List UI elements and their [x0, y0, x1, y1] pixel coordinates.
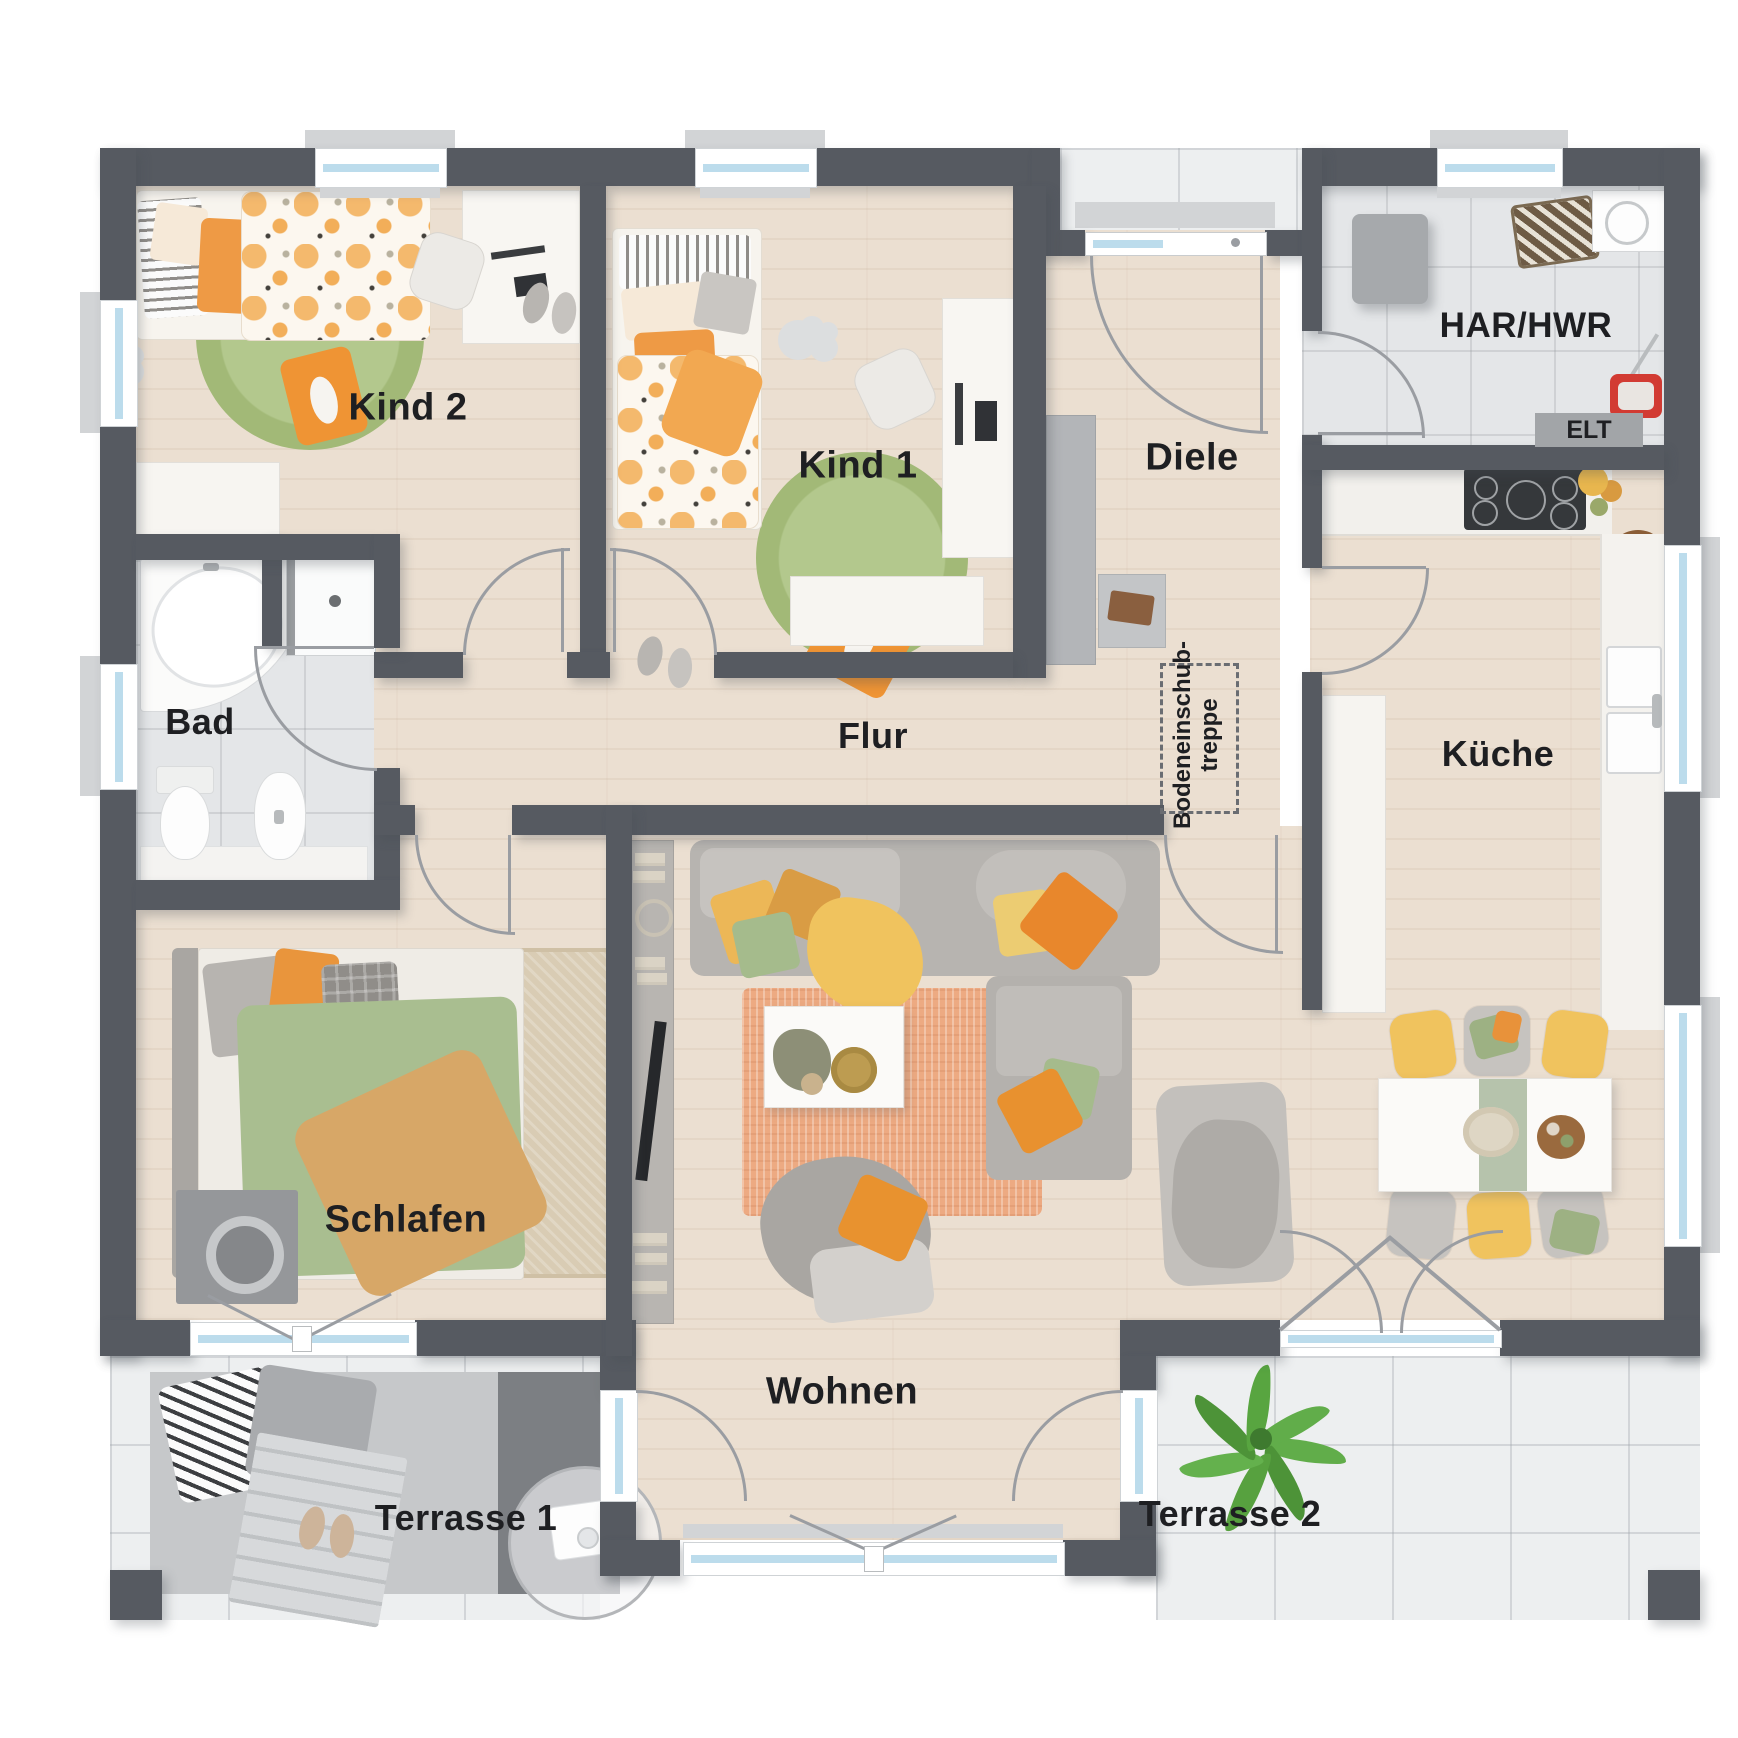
bed-kind2 [136, 190, 430, 340]
dining-chair-gray [1464, 1006, 1530, 1076]
burner-icon [1506, 480, 1546, 520]
bidet-faucet-icon [274, 810, 284, 824]
dining-chair-gray [1535, 1182, 1610, 1261]
door-sidelight-glass [1093, 240, 1163, 248]
window-kind2-north [315, 148, 447, 188]
bathtub-faucet-icon [203, 563, 219, 571]
room-label-terrasse1: Terrasse 1 [375, 1497, 557, 1539]
laundry-basket [1510, 195, 1600, 270]
cleaning-bucket [1610, 374, 1662, 418]
kitchen-tall-cabinet [1322, 695, 1386, 1013]
bucket-rag [1618, 382, 1654, 410]
window-kind2-west [100, 300, 138, 427]
toy-fox [306, 374, 343, 427]
toilet [152, 766, 216, 862]
room-label-kueche: Küche [1442, 733, 1555, 775]
window-essen-east [1664, 1005, 1702, 1247]
window-sill [80, 292, 100, 433]
utility-unit [1352, 214, 1428, 304]
entrance-door [1085, 232, 1267, 256]
room-label-kind2: Kind 2 [348, 387, 467, 430]
wall-bad-north [136, 534, 374, 560]
draped-cloth-orange [1491, 1010, 1523, 1045]
shower [286, 558, 376, 656]
table-bowl [1537, 1115, 1585, 1159]
wall-south-schlafen-right [415, 1320, 636, 1356]
plant-pot-icon [801, 1073, 823, 1095]
draped-cloth-green [1548, 1208, 1601, 1257]
bed-kind1 [612, 228, 762, 530]
door-leaf [1318, 432, 1422, 435]
kitchen-counter-east [1600, 534, 1666, 1030]
label-attic-stair: Bodeneinschub- treppe [1169, 641, 1223, 829]
window-kueche-east [1664, 545, 1702, 792]
terrace-door-wohnen-east [1120, 1390, 1158, 1502]
gold-tray [831, 1047, 877, 1093]
wall-north-left [100, 148, 1032, 186]
wall-south-essen-right [1500, 1320, 1700, 1356]
window-sill [80, 656, 100, 796]
slider-handle [864, 1546, 884, 1572]
dining-table [1378, 1078, 1612, 1192]
wall-har-south [1302, 445, 1664, 470]
books [631, 1281, 667, 1291]
terrace-door-wohnen-west [600, 1390, 638, 1502]
books [1107, 590, 1155, 626]
wall-bad-south [136, 880, 400, 910]
faucet-icon [1652, 694, 1662, 728]
nightstand [176, 1190, 298, 1304]
wall-diele-east-a [1302, 148, 1322, 331]
monitor-icon [955, 383, 963, 445]
threshold-strip [683, 1524, 1063, 1538]
cloud-side-table-kind1 [778, 320, 818, 360]
books [633, 1233, 667, 1243]
kitchen-flowers [1578, 466, 1608, 496]
desk-kind1 [942, 298, 1015, 558]
dining-chair-yellow [1540, 1008, 1611, 1082]
wall-south-schlafen-left [100, 1320, 190, 1356]
window-har-north [1437, 148, 1563, 188]
wall-schlafen-north-stub [374, 805, 415, 835]
entry-step [1075, 202, 1275, 228]
window-sill [685, 130, 825, 148]
window-sill [1700, 997, 1720, 1253]
armchair [1155, 1081, 1295, 1288]
burner-icon [1550, 502, 1578, 530]
books [637, 973, 667, 982]
room-label-diele: Diele [1145, 437, 1238, 480]
washer-door-icon [1605, 201, 1649, 245]
window-sill [305, 130, 455, 148]
table-flowers [1463, 1107, 1519, 1157]
monitor-icon [491, 245, 545, 259]
sideboard-kind1 [790, 576, 984, 646]
terrace1-corner-post [110, 1570, 162, 1620]
shower-glass [287, 559, 295, 655]
wall-flur-north-b [567, 652, 610, 678]
cooktop [1464, 468, 1586, 530]
door-leaf [561, 548, 564, 652]
armchair-drape [1169, 1117, 1283, 1270]
burner-icon [1472, 500, 1498, 526]
elt-cabinet: ELT [1535, 413, 1643, 447]
window-sill [1430, 130, 1568, 148]
floor-plan: ELT [0, 0, 1738, 1738]
wall-schlafen-east [606, 805, 632, 1356]
shower-drain-icon [329, 595, 341, 607]
room-label-wohnen: Wohnen [766, 1371, 918, 1414]
wall-flur-north-a [374, 652, 463, 678]
cup-icon [577, 1527, 599, 1549]
washing-machine [1592, 190, 1666, 252]
palm-trunk-icon [1250, 1428, 1272, 1450]
bidet [248, 772, 310, 862]
books [635, 1253, 667, 1262]
label-attic-stair-line1: Bodeneinschub- [1169, 641, 1196, 829]
wall-kueche-west [1302, 672, 1322, 1010]
burner-icon [1552, 476, 1578, 502]
door-leaf [1260, 256, 1263, 431]
room-label-kind1: Kind 1 [798, 445, 917, 488]
room-label-flur: Flur [838, 715, 908, 757]
books [635, 853, 665, 863]
books [633, 871, 665, 880]
media-panel [626, 840, 674, 1324]
window-bad-west [100, 664, 138, 790]
sofa-pillow-green [731, 910, 802, 979]
room-label-bad: Bad [165, 701, 235, 743]
room-label-har-hwr: HAR/HWR [1440, 306, 1613, 346]
door-leaf [508, 835, 511, 932]
door-leaf [613, 548, 616, 652]
wall-bay-west-a [600, 1356, 636, 1390]
gear-decor-icon [635, 899, 673, 937]
pillow-gray [693, 271, 758, 336]
door-handle-icon [1231, 238, 1240, 247]
room-label-terrasse2: Terrasse 2 [1139, 1493, 1321, 1535]
label-attic-stair-line2: treppe [1196, 698, 1223, 771]
wall-kind1-kind2 [580, 186, 606, 652]
wall-bay-south-left [600, 1540, 680, 1576]
wall-bay-south-right [1063, 1540, 1156, 1576]
wall-bay-east-a [1120, 1356, 1156, 1390]
duvet-polka [241, 191, 431, 341]
hall-wardrobe [1046, 415, 1096, 665]
window-sill [1700, 537, 1720, 798]
wall-entry-right [1265, 230, 1302, 256]
wall-flur-north-c [714, 652, 1013, 678]
wall-entry-left [1060, 230, 1085, 256]
dining-chair-yellow [1388, 1008, 1459, 1082]
door-leaf [1322, 566, 1426, 569]
window-kind1-north [695, 148, 817, 188]
slider-handle [292, 1326, 312, 1352]
terrace2-corner-post [1648, 1570, 1700, 1620]
tv-icon [635, 1021, 666, 1181]
room-label-schlafen: Schlafen [325, 1199, 487, 1242]
door-leaf [254, 646, 374, 649]
burner-icon [1474, 476, 1498, 500]
sideboard-kind2 [136, 462, 280, 536]
wall-kind1-east [1013, 186, 1046, 678]
hall-console [1098, 574, 1166, 648]
toilet-bowl [160, 786, 210, 860]
door-leaf [1275, 835, 1278, 951]
books [635, 957, 665, 967]
coffee-table [764, 1006, 904, 1108]
keyboard-icon [975, 401, 997, 441]
wall-south-essen-left [1120, 1320, 1280, 1356]
wall-bad-east-a [374, 534, 400, 648]
table-lamp-icon [206, 1216, 284, 1294]
elt-label: ELT [1566, 416, 1611, 445]
